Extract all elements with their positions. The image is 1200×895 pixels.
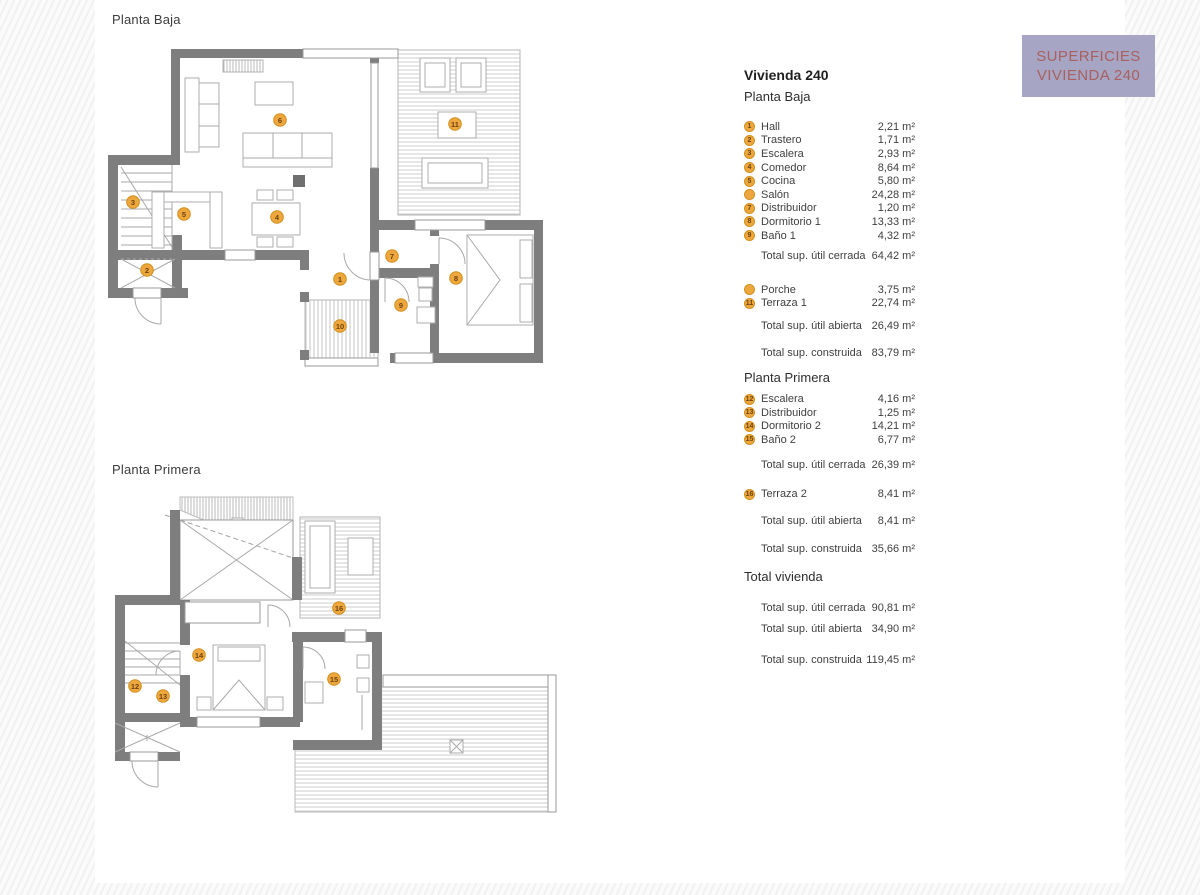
stairs-escalera-p1: [125, 641, 180, 685]
total-value: 26,49 m²: [872, 320, 915, 332]
svg-text:10: 10: [336, 322, 344, 331]
svg-text:1: 1: [338, 275, 342, 284]
section-heading-planta-primera: Planta Primera: [744, 371, 915, 385]
room-number-badge: 1: [744, 121, 755, 132]
table-row: 1Hall2,21 m²: [744, 120, 915, 134]
svg-text:9: 9: [399, 301, 403, 310]
room-area-value: 2,21 m²: [878, 121, 915, 133]
svg-text:7: 7: [390, 252, 394, 261]
planta-primera-rooms: 12Escalera4,16 m² 13Distribuidor1,25 m² …: [744, 392, 915, 446]
svg-text:13: 13: [159, 692, 167, 701]
banner-line2: VIVIENDA 240: [1037, 66, 1140, 85]
room-label: Dormitorio 2: [761, 420, 872, 432]
room-number-badge: 3: [744, 148, 755, 159]
table-row: 15Baño 26,77 m²: [744, 433, 915, 447]
room-area-value: 6,77 m²: [878, 434, 915, 446]
floor-plan-planta-primera: 12 13 14 15 16: [100, 485, 570, 830]
total-row: Total sup. útil cerrada64,42 m²: [744, 249, 915, 263]
superficies-banner: SUPERFICIES VIVIENDA 240: [1022, 35, 1155, 97]
table-row: 14Dormitorio 214,21 m²: [744, 420, 915, 434]
room-marker-5: 5: [178, 208, 191, 221]
room-label: Terraza 1: [761, 297, 872, 309]
double-height-void: [165, 515, 293, 600]
room-marker-7: 7: [386, 250, 399, 263]
section-heading-total-vivienda: Total vivienda: [744, 570, 915, 584]
total-label: Total sup. construida: [744, 543, 872, 555]
room-area-value: 1,25 m²: [878, 407, 915, 419]
room-area-value: 1,71 m²: [878, 134, 915, 146]
total-row: Total sup. útil cerrada90,81 m²: [744, 601, 915, 615]
room-number-badge: 5: [744, 176, 755, 187]
room-marker-10: 10: [334, 320, 347, 333]
room-marker-6: 6: [274, 114, 287, 127]
room-number-badge: 12: [744, 394, 755, 405]
total-label: Total sup. útil cerrada: [744, 602, 872, 614]
room-number-badge: 8: [744, 216, 755, 227]
total-value: 119,45 m²: [866, 654, 915, 666]
room-label: Escalera: [761, 148, 878, 160]
total-row: Total sup. útil abierta34,90 m²: [744, 623, 915, 637]
room-area-value: 4,16 m²: [878, 393, 915, 405]
room-marker-4: 4: [271, 211, 284, 224]
room-area-value: 1,20 m²: [878, 202, 915, 214]
total-row: Total sup. útil abierta26,49 m²: [744, 319, 915, 333]
room-marker-14: 14: [193, 649, 206, 662]
room-area-value: 14,21 m²: [872, 420, 915, 432]
total-value: 34,90 m²: [872, 623, 915, 635]
room-marker-8: 8: [450, 272, 463, 285]
total-label: Total sup. útil abierta: [744, 515, 878, 527]
table-row: 2Trastero1,71 m²: [744, 134, 915, 148]
total-value: 8,41 m²: [878, 515, 915, 527]
svg-text:8: 8: [454, 274, 458, 283]
planta-baja-rooms: 1Hall2,21 m² 2Trastero1,71 m² 3Escalera2…: [744, 120, 915, 242]
room-marker-16: 16: [333, 602, 346, 615]
room-marker-9: 9: [395, 299, 408, 312]
total-label: Total sup. útil cerrada: [744, 250, 872, 262]
terraza1-deck: [398, 50, 520, 215]
bedroom2-furniture: [197, 645, 283, 710]
table-row: 7Distribuidor1,20 m²: [744, 202, 915, 216]
room-area-value: 22,74 m²: [872, 297, 915, 309]
room-label: Salón: [761, 189, 872, 201]
total-label: Total sup. útil abierta: [744, 623, 872, 635]
total-row: Total sup. construida35,66 m²: [744, 542, 915, 556]
total-value: 26,39 m²: [872, 459, 915, 471]
room-marker-2: 2: [141, 264, 154, 277]
total-value: 90,81 m²: [872, 602, 915, 614]
table-row: 16Terraza 28,41 m²: [744, 487, 915, 501]
total-label: Total sup. construida: [744, 654, 866, 666]
total-row: Total sup. construida119,45 m²: [744, 653, 915, 667]
room-number-badge: 2: [744, 135, 755, 146]
room-label: Hall: [761, 121, 878, 133]
living-room-furniture: [185, 60, 332, 247]
svg-text:2: 2: [145, 266, 149, 275]
svg-text:12: 12: [131, 682, 139, 691]
room-label: Distribuidor: [761, 202, 878, 214]
svg-text:14: 14: [195, 651, 204, 660]
room-number-badge: 4: [744, 162, 755, 173]
room-label: Baño 2: [761, 434, 878, 446]
table-row: 12Escalera4,16 m²: [744, 392, 915, 406]
legend-title: Vivienda 240: [744, 67, 915, 83]
bathroom1-fixtures: [417, 277, 435, 323]
room-number-badge: 7: [744, 203, 755, 214]
table-row: 8Dormitorio 113,33 m²: [744, 215, 915, 229]
table-row: 11Terraza 122,74 m²: [744, 297, 915, 311]
room-label: Dormitorio 1: [761, 216, 872, 228]
room-area-value: 24,28 m²: [872, 189, 915, 201]
svg-text:5: 5: [182, 210, 186, 219]
section-heading-planta-baja: Planta Baja: [744, 90, 915, 104]
banner-line1: SUPERFICIES: [1036, 47, 1140, 66]
room-number-badge: 16: [744, 489, 755, 500]
floor-plan-planta-baja: 1 2 3 4 5 6 7 8 9 10 11: [100, 40, 560, 380]
room-label: Terraza 2: [761, 488, 878, 500]
room-number-badge: 14: [744, 421, 755, 432]
planta-baja-open-rooms: Porche3,75 m² 11Terraza 122,74 m²: [744, 283, 915, 310]
svg-text:11: 11: [451, 120, 459, 129]
room-area-value: 13,33 m²: [872, 216, 915, 228]
room-marker-13: 13: [157, 690, 170, 703]
room-marker-11: 11: [449, 118, 462, 131]
table-row: 4Comedor8,64 m²: [744, 161, 915, 175]
total-label: Total sup. construida: [744, 347, 872, 359]
room-label: Escalera: [761, 393, 878, 405]
table-row: 13Distribuidor1,25 m²: [744, 406, 915, 420]
room-number-badge: [744, 284, 755, 295]
room-marker-1: 1: [334, 273, 347, 286]
table-row: 3Escalera2,93 m²: [744, 147, 915, 161]
table-row: Salón24,28 m²: [744, 188, 915, 202]
room-area-value: 5,80 m²: [878, 175, 915, 187]
bedroom1-furniture: [467, 235, 533, 325]
total-row: Total sup. útil cerrada26,39 m²: [744, 459, 915, 473]
table-row: 5Cocina5,80 m²: [744, 174, 915, 188]
total-value: 64,42 m²: [872, 250, 915, 262]
svg-text:3: 3: [131, 198, 135, 207]
room-area-value: 4,32 m²: [878, 230, 915, 242]
room-marker-12: 12: [129, 680, 142, 693]
room-area-value: 3,75 m²: [878, 284, 915, 296]
room-number-badge: 13: [744, 407, 755, 418]
total-value: 35,66 m²: [872, 543, 915, 555]
total-label: Total sup. útil cerrada: [744, 459, 872, 471]
total-value: 83,79 m²: [872, 347, 915, 359]
room-label: Porche: [761, 284, 878, 296]
svg-text:16: 16: [335, 604, 343, 613]
room-label: Trastero: [761, 134, 878, 146]
svg-text:15: 15: [330, 675, 338, 684]
table-row: 9Baño 14,32 m²: [744, 229, 915, 243]
total-row: Total sup. útil abierta8,41 m²: [744, 514, 915, 528]
plan-title-planta-baja: Planta Baja: [112, 12, 181, 27]
total-row: Total sup. construida83,79 m²: [744, 346, 915, 360]
table-row: Porche3,75 m²: [744, 283, 915, 297]
room-label: Distribuidor: [761, 407, 878, 419]
room-label: Baño 1: [761, 230, 878, 242]
room-area-value: 2,93 m²: [878, 148, 915, 160]
plan-title-planta-primera: Planta Primera: [112, 462, 201, 477]
room-marker-15: 15: [328, 673, 341, 686]
room-number-badge: 11: [744, 298, 755, 309]
room-area-value: 8,64 m²: [878, 162, 915, 174]
room-number-badge: 9: [744, 230, 755, 241]
total-label: Total sup. útil abierta: [744, 320, 872, 332]
areas-legend: Vivienda 240 Planta Baja 1Hall2,21 m² 2T…: [744, 67, 915, 667]
room-label: Cocina: [761, 175, 878, 187]
room-area-value: 8,41 m²: [878, 488, 915, 500]
room-number-badge: [744, 189, 755, 200]
porche-deck: [305, 300, 378, 366]
room-number-badge: 15: [744, 434, 755, 445]
room-label: Comedor: [761, 162, 878, 174]
room-marker-3: 3: [127, 196, 140, 209]
svg-text:6: 6: [278, 116, 282, 125]
